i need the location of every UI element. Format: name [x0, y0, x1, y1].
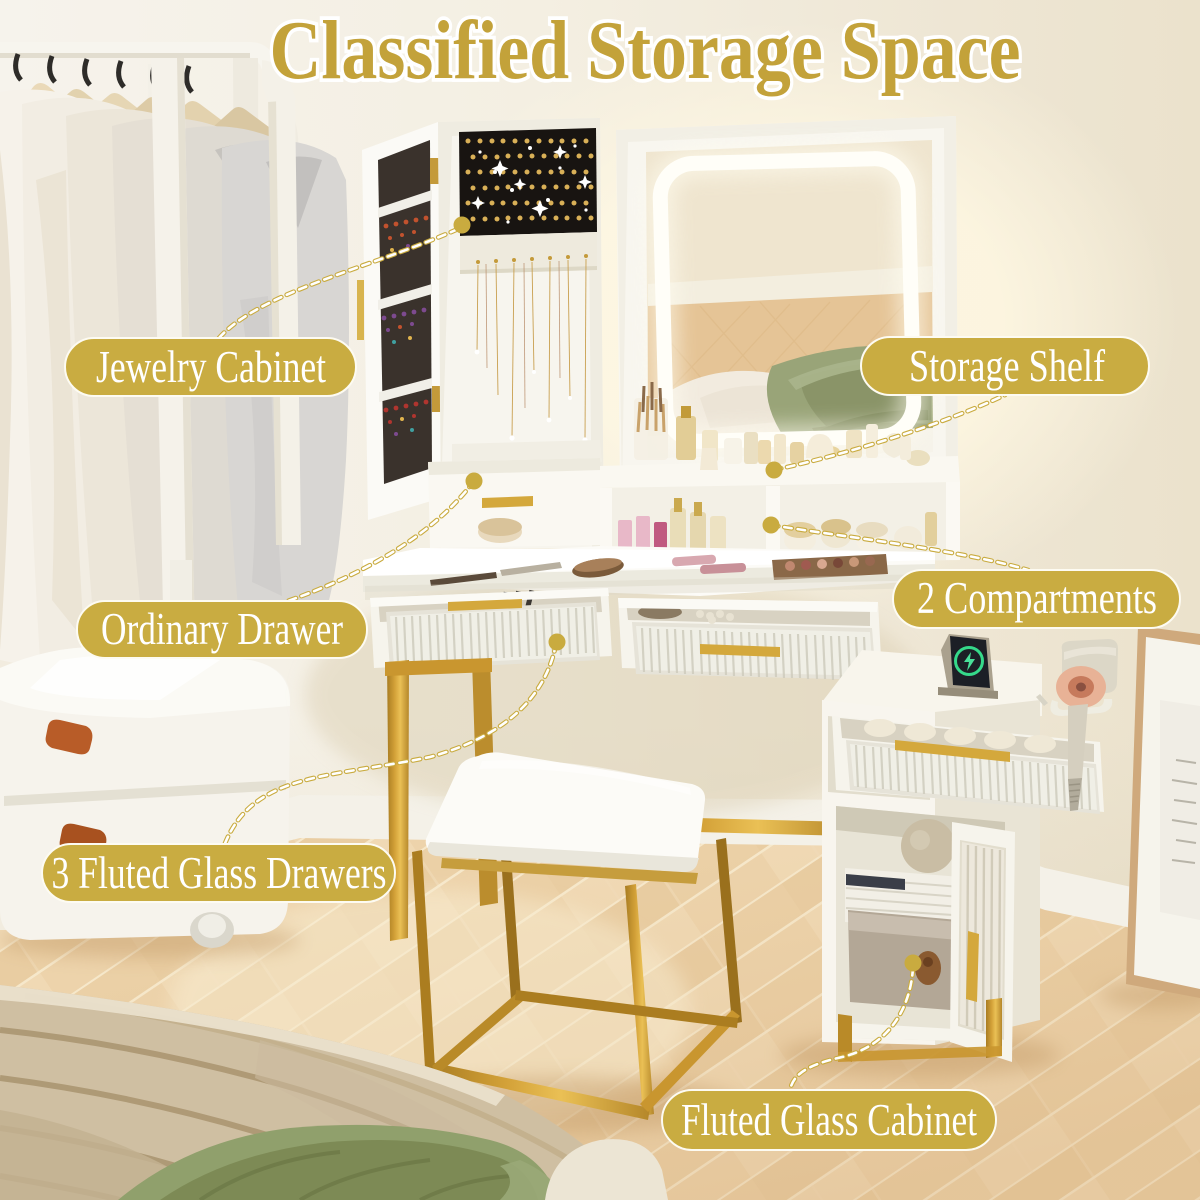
svg-text:3 Fluted Glass Drawers: 3 Fluted Glass Drawers — [52, 848, 387, 898]
svg-text:Classified Storage Space: Classified Storage Space — [270, 4, 1021, 97]
svg-text:2 Compartments: 2 Compartments — [917, 573, 1157, 623]
svg-text:Ordinary Drawer: Ordinary Drawer — [101, 604, 343, 654]
svg-text:Fluted Glass Cabinet: Fluted Glass Cabinet — [681, 1095, 977, 1145]
svg-text:Storage Shelf: Storage Shelf — [909, 341, 1105, 391]
svg-text:Jewelry Cabinet: Jewelry Cabinet — [96, 342, 326, 392]
